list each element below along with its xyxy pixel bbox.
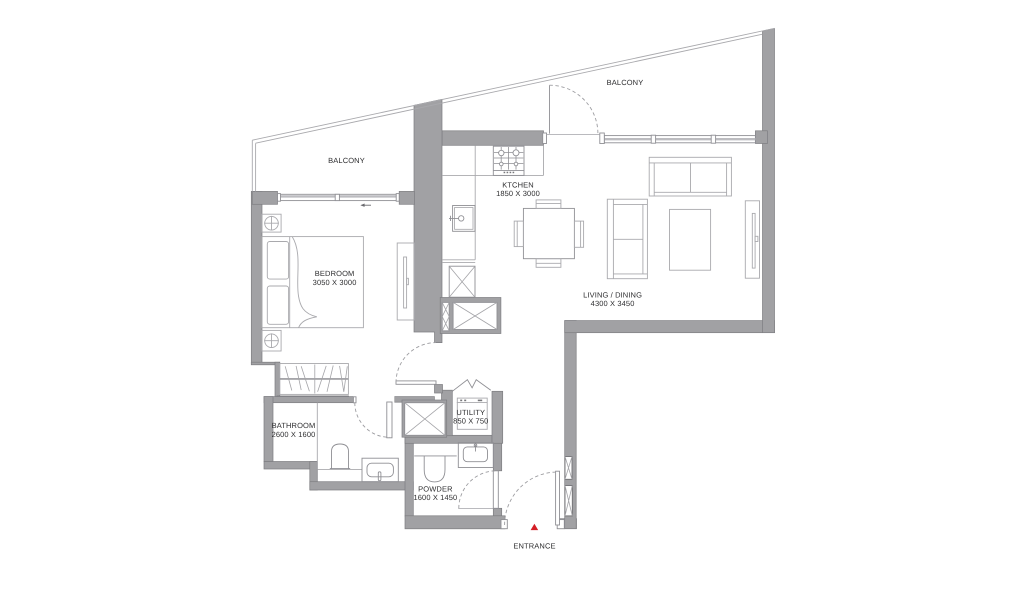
svg-text:BALCONY: BALCONY	[328, 156, 365, 165]
svg-text:BATHROOM: BATHROOM	[272, 421, 316, 430]
svg-text:BALCONY: BALCONY	[607, 78, 644, 87]
svg-text:2600 X 1600: 2600 X 1600	[272, 430, 316, 439]
svg-text:ENTRANCE: ENTRANCE	[513, 542, 555, 551]
svg-text:1600 X 1450: 1600 X 1450	[413, 493, 457, 502]
svg-text:4300 X 3450: 4300 X 3450	[591, 299, 635, 308]
svg-text:1850 X 3000: 1850 X 3000	[496, 189, 540, 198]
svg-text:850 X 750: 850 X 750	[453, 417, 488, 426]
svg-text:BEDROOM: BEDROOM	[315, 269, 355, 278]
svg-text:KTCHEN: KTCHEN	[502, 180, 534, 189]
svg-text:3050 X 3000: 3050 X 3000	[313, 278, 357, 287]
